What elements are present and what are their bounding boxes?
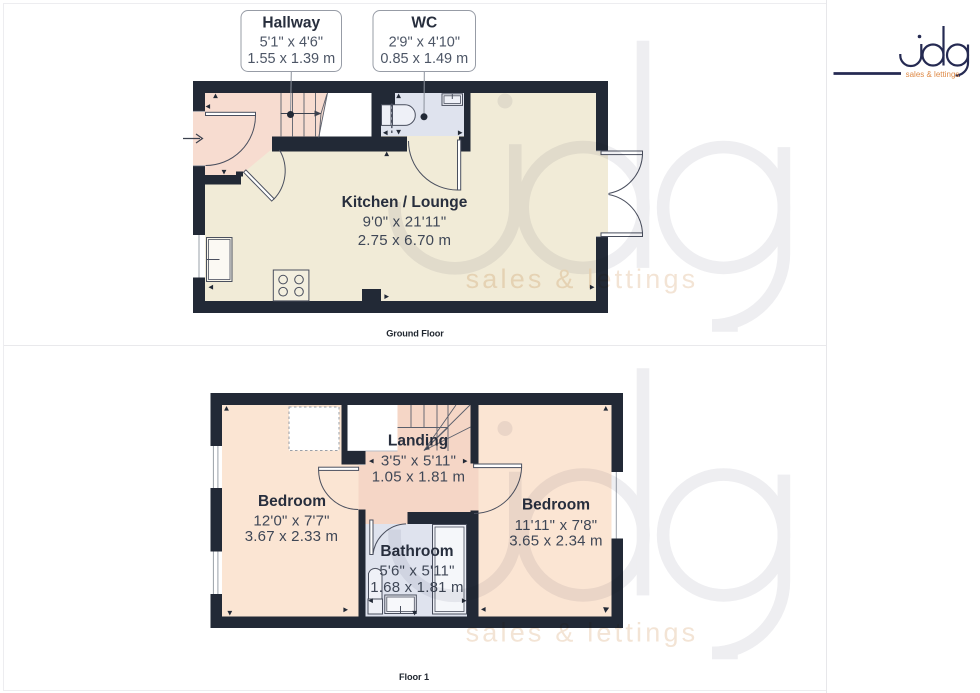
svg-text:5'1" x 4'6": 5'1" x 4'6" — [260, 35, 323, 51]
svg-text:Bedroom: Bedroom — [258, 493, 326, 510]
svg-text:12'0" x 7'7": 12'0" x 7'7" — [253, 513, 329, 530]
svg-text:Hallway: Hallway — [262, 15, 320, 32]
svg-text:0.85 x 1.49 m: 0.85 x 1.49 m — [380, 51, 468, 67]
svg-text:1.55 x 1.39 m: 1.55 x 1.39 m — [247, 51, 335, 67]
svg-text:3.67 x 2.33 m: 3.67 x 2.33 m — [245, 528, 339, 545]
svg-text:Landing: Landing — [388, 433, 448, 450]
svg-text:3'5" x 5'11": 3'5" x 5'11" — [381, 453, 456, 470]
svg-text:Ground Floor: Ground Floor — [386, 328, 444, 338]
svg-text:sales & lettings: sales & lettings — [466, 264, 699, 294]
svg-text:Kitchen / Lounge: Kitchen / Lounge — [342, 194, 468, 211]
svg-text:1.05 x 1.81 m: 1.05 x 1.81 m — [372, 468, 466, 485]
svg-text:sales & lettings: sales & lettings — [906, 70, 960, 79]
svg-text:sales & lettings: sales & lettings — [466, 618, 699, 648]
svg-text:2'9" x 4'10": 2'9" x 4'10" — [389, 35, 460, 51]
svg-text:WC: WC — [411, 15, 437, 32]
svg-text:Floor 1: Floor 1 — [399, 672, 429, 682]
